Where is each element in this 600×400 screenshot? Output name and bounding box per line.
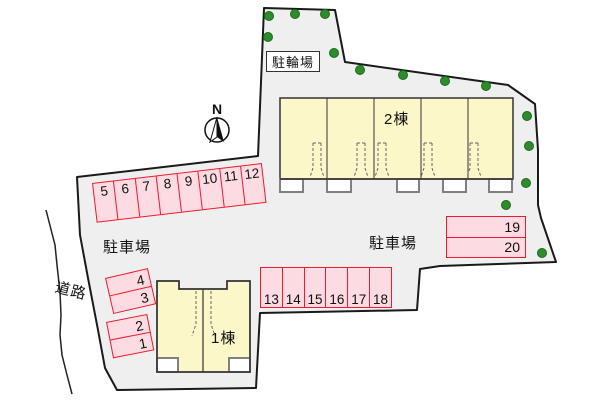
parking-space-14: 14 bbox=[282, 268, 304, 307]
parking-space-18: 18 bbox=[369, 268, 391, 307]
parking-lot-label-right: 駐車場 bbox=[369, 236, 417, 251]
building-2-label: 2棟 bbox=[384, 112, 409, 127]
parking-space-16: 16 bbox=[325, 268, 347, 307]
site-plan: N 駐輪場 駐車場 駐車場 道路 2棟 1棟 5 6 7 8 9 10 11 1… bbox=[0, 0, 600, 400]
road-edge-line bbox=[46, 210, 72, 394]
parking-group-left-lower: 2 1 bbox=[106, 314, 154, 358]
parking-space-13: 13 bbox=[261, 268, 282, 307]
parking-space-20: 20 bbox=[447, 237, 525, 258]
parking-space-15: 15 bbox=[304, 268, 326, 307]
parking-row-bottom: 13 14 15 16 17 18 bbox=[260, 267, 392, 308]
north-compass-icon bbox=[205, 117, 229, 142]
parking-lot-label-left: 駐車場 bbox=[103, 240, 151, 255]
parking-space-12: 12 bbox=[240, 164, 266, 204]
bicycle-parking-label: 駐輪場 bbox=[266, 51, 320, 72]
parking-space-17: 17 bbox=[347, 268, 369, 307]
compass-north-label: N bbox=[212, 102, 222, 116]
parking-group-right: 19 20 bbox=[446, 216, 526, 258]
building-1-label: 1棟 bbox=[211, 331, 236, 346]
building-1 bbox=[157, 281, 250, 372]
parking-space-19: 19 bbox=[447, 217, 525, 237]
